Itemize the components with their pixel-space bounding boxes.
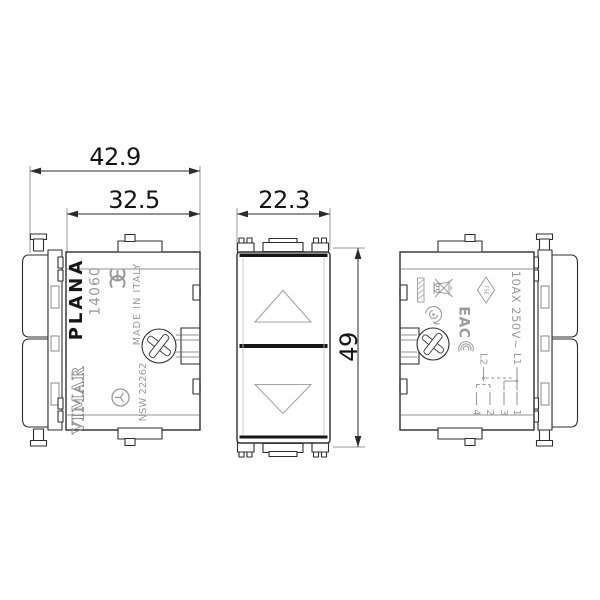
brand-label: VIMAR: [69, 366, 88, 435]
arrowhead-left-icon: [67, 211, 78, 218]
dimension-value: 49: [335, 332, 363, 362]
terminal-4: 4: [471, 409, 482, 415]
arrowhead-bottom-icon: [355, 436, 362, 447]
terminal-2: 2: [484, 409, 495, 415]
series-label: PLANA: [66, 258, 87, 341]
rocker-button-top-profile: [552, 255, 578, 337]
dimension-value: 32.5: [108, 186, 159, 214]
left-side-view: PLANA 14060 MADE IN ITALY VIMAR NSW 2226…: [23, 234, 201, 446]
terminal-1: 1: [511, 409, 522, 415]
bottom-tab: [118, 428, 162, 446]
arrowhead-left-icon: [30, 168, 41, 175]
rocker-button-bottom-profile: [552, 339, 578, 427]
bottom-center-tab: [263, 444, 303, 457]
frame-pin-top: [537, 234, 553, 251]
origin-label: MADE IN ITALY: [132, 263, 143, 345]
front-view: [237, 238, 330, 457]
l1-label: L1: [511, 353, 522, 365]
top-gap-shadow: [240, 254, 328, 258]
junction-dot: [482, 377, 485, 380]
arrowhead-right-icon: [319, 211, 330, 218]
frame-pin-bottom: [537, 429, 553, 446]
top-tab: [438, 235, 482, 253]
rocker-button-top-profile: [23, 255, 49, 337]
arrowhead-right-icon: [189, 211, 200, 218]
code-label: NSW 22262: [138, 363, 149, 422]
bottom-tab: [438, 428, 482, 446]
top-tab: [118, 235, 162, 253]
top-center-tab: [263, 239, 303, 252]
arrowhead-top-icon: [355, 248, 362, 259]
dimension-module-height: 49: [333, 248, 365, 447]
eac-mark: EAC: [456, 306, 472, 338]
arrowhead-right-icon: [189, 168, 200, 175]
junction-dot: [516, 380, 519, 383]
dimension-value: 42.9: [89, 143, 140, 171]
arrowhead-left-icon: [237, 211, 248, 218]
terminal-3: 3: [498, 409, 509, 415]
mounting-frame: [538, 250, 552, 430]
technical-drawing: 42.9 32.5 22.3 49: [0, 0, 600, 600]
rocker-button-bottom-profile: [23, 339, 49, 427]
right-side-view: EAC TSE 10AX 250V~ L1 L2 1 3 2 4: [400, 234, 578, 446]
tse-mark: TSE: [483, 284, 489, 294]
article-number: 14060: [88, 266, 104, 316]
dimension-value: 22.3: [258, 186, 309, 214]
l2-label: L2: [478, 353, 489, 365]
rating-label: 10AX 250V~: [509, 271, 523, 350]
frame-pin-top: [31, 234, 47, 251]
frame-pin-bottom: [31, 429, 47, 446]
button-divider: [240, 344, 328, 348]
bottom-gap-shadow: [240, 436, 328, 439]
